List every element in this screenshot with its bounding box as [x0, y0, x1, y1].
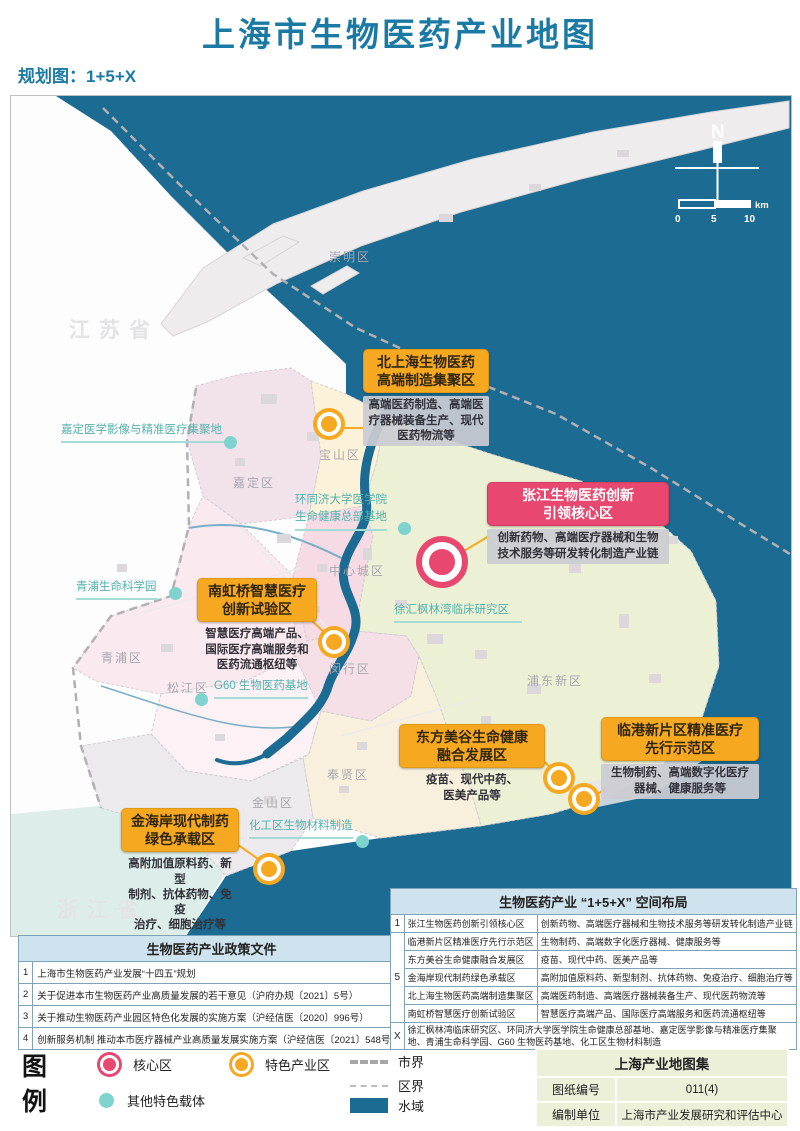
- legend-item-city-boundary: 市界: [350, 1052, 424, 1071]
- district-label-minhang: 闵行区: [329, 660, 371, 677]
- featured-dot-dongfangmeigu: [547, 766, 571, 790]
- table-row: 2关于促进本市生物医药产业高质量发展的若干意见（沪府办规〔2021〕5号）: [19, 984, 405, 1006]
- district-label-baoshan: 宝山区: [319, 446, 361, 463]
- water-area-icon: [350, 1098, 388, 1113]
- site-label-huagong: 化工区生物材料制造: [249, 818, 353, 839]
- scale-bar-right: [715, 200, 751, 208]
- site-label-jiading-imaging: 嘉定医学影像与精准医疗集聚地: [61, 422, 229, 443]
- callout-zhangjiang-title: 张江生物医药创新 引领核心区: [487, 482, 669, 526]
- featured-dot-jinhaian: [257, 857, 281, 881]
- core-dot-zhangjiang: [422, 542, 462, 582]
- legend-district-label: 区界: [398, 1076, 424, 1095]
- featured-dot-nanhongqiao: [322, 630, 346, 654]
- callout-jinhaian-desc: 高附加值原料药、新型 制剂、抗体药物、免疫 治疗、细胞治疗等: [121, 855, 239, 935]
- sheet-number-label: 图纸编号: [536, 1077, 616, 1102]
- table-row: 5 临港新片区精准医疗先行示范区 生物制药、高端数字化医疗器械、健康服务等: [391, 933, 797, 951]
- legend-item-featured: 特色产业区: [228, 1051, 330, 1078]
- core-zone-icon: [100, 1055, 119, 1074]
- legend-water-label: 水域: [398, 1096, 424, 1115]
- callout-jinhaian: 金海岸现代制药 绿色承载区 高附加值原料药、新型 制剂、抗体药物、免疫 治疗、细…: [121, 808, 239, 935]
- district-label-jinshan: 金山区: [252, 794, 294, 811]
- scale-tick-0: 0: [675, 214, 681, 225]
- policy-row-text: 创新服务机制 推动本市医疗器械产业高质量发展实施方案（沪经信医〔2021〕548…: [33, 1028, 405, 1050]
- table-row: 4创新服务机制 推动本市医疗器械产业高质量发展实施方案（沪经信医〔2021〕54…: [19, 1028, 405, 1050]
- province-label-jiangsu: 江苏省: [69, 314, 159, 344]
- table-row: 编制单位 上海市产业发展研究和评估中心: [536, 1102, 788, 1127]
- carrier-dot-qingpu: [169, 587, 182, 600]
- callout-nanhongqiao-desc: 智慧医疗高端产品、 国际医疗高端服务和 医药流通枢纽等: [197, 625, 317, 675]
- map-info-box: 上海产业地图集 图纸编号 011(4) 编制单位 上海市产业发展研究和评估中心: [535, 1048, 789, 1128]
- spatial-layout-table: 生物医药产业 “1+5+X” 空间布局 1 张江生物医药创新引领核心区 创新药物…: [390, 888, 797, 1050]
- district-label-fengxian: 奉贤区: [327, 766, 369, 783]
- legend-item-core: 核心区: [96, 1051, 172, 1078]
- callout-lingang: 临港新片区精准医疗 先行示范区 生物制药、高端数字化医疗 器械、健康服务等: [601, 717, 759, 799]
- table-row: 1 张江生物医药创新引领核心区 创新药物、高端医疗器械和生物技术服务等研发转化制…: [391, 915, 797, 933]
- policy-row-text: 关于推动生物医药产业园区特色化发展的实施方案（沪经信医〔2020〕996号）: [33, 1006, 405, 1028]
- district-label-qingpu: 青浦区: [101, 649, 143, 666]
- policy-table-title: 生物医药产业政策文件: [19, 936, 405, 962]
- table-row: 图纸编号 011(4): [536, 1077, 788, 1102]
- legend-item-carrier: 其他特色载体: [96, 1090, 205, 1111]
- callout-lingang-desc: 生物制药、高端数字化医疗 器械、健康服务等: [601, 764, 759, 798]
- featured-dot-lingang: [572, 787, 596, 811]
- layout-table-title: 生物医药产业 “1+5+X” 空间布局: [391, 889, 797, 915]
- legend-featured-label: 特色产业区: [265, 1055, 330, 1074]
- policy-row-text: 关于促进本市生物医药产业高质量发展的若干意见（沪府办规〔2021〕5号）: [33, 984, 405, 1006]
- callout-zhangjiang-desc: 创新药物、高端医疗器械和生物 技术服务等研发转化制造产业链: [487, 529, 669, 563]
- policy-row-text: 上海市生物医药产业发展“十四五”规划: [33, 962, 405, 984]
- callout-nanhongqiao: 南虹桥智慧医疗 创新试验区 智慧医疗高端产品、 国际医疗高端服务和 医药流通枢纽…: [197, 578, 317, 675]
- callout-dongfangmeigu: 东方美谷生命健康 融合发展区 疫苗、现代中药、 医美产品等: [399, 724, 545, 806]
- carrier-dot-jiading: [224, 436, 237, 449]
- featured-dot-beishanghai: [317, 412, 341, 436]
- callout-zhangjiang: 张江生物医药创新 引领核心区 创新药物、高端医疗器械和生物 技术服务等研发转化制…: [487, 482, 669, 564]
- callout-dongfangmeigu-desc: 疫苗、现代中药、 医美产品等: [399, 771, 545, 805]
- legend-city-label: 市界: [398, 1052, 424, 1071]
- legend-core-label: 核心区: [133, 1055, 172, 1074]
- callout-nanhongqiao-title: 南虹桥智慧医疗 创新试验区: [197, 578, 317, 622]
- map-panel: N 0 5 10 km 江苏省 浙江省 崇明区 嘉定区 宝山区 中心城区 青浦区…: [10, 95, 792, 937]
- callout-jinhaian-title: 金海岸现代制药 绿色承载区: [121, 808, 239, 852]
- carrier-dot-tongji: [398, 522, 411, 535]
- north-icon: N: [711, 122, 725, 143]
- table-row: 北上海生物医药高端制造集聚区 高端医药制造、高端医疗器械装备生产、现代医药物流等: [391, 987, 797, 1005]
- callout-beishanghai-desc: 高端医药制造、高端医 疗器械装备生产、现代 医药物流等: [363, 396, 489, 446]
- carrier-dot-g60: [195, 693, 208, 706]
- table-row: 东方美谷生命健康融合发展区 疫苗、现代中药、医美产品等: [391, 951, 797, 969]
- callout-beishanghai-title: 北上海生物医药 高端制造集聚区: [363, 349, 489, 393]
- scale-unit: km: [755, 200, 769, 211]
- district-label-jiading: 嘉定区: [233, 474, 275, 491]
- legend-item-water: 水域: [350, 1096, 424, 1115]
- sheet-number-value: 011(4): [616, 1077, 788, 1102]
- district-label-pudong: 浦东新区: [527, 672, 583, 689]
- district-label-central: 中心城区: [329, 562, 385, 579]
- table-row: 金海岸现代制药绿色承载区 高附加值原料药、新型制剂、抗体药物、免疫治疗、细胞治疗…: [391, 969, 797, 987]
- site-label-tongji: 环同济大学医学院 生命健康总部基地: [295, 492, 387, 531]
- callout-beishanghai: 北上海生物医药 高端制造集聚区 高端医药制造、高端医 疗器械装备生产、现代 医药…: [363, 349, 489, 446]
- page-canvas: 上海市生物医药产业地图 规划图：1+5+X: [0, 0, 800, 1131]
- district-boundary-icon: [350, 1085, 388, 1087]
- page-subtitle: 规划图：1+5+X: [18, 62, 136, 87]
- policy-table: 生物医药产业政策文件 1上海市生物医药产业发展“十四五”规划 2关于促进本市生物…: [18, 935, 405, 1050]
- table-row: X 徐汇枫林湾临床研究区、环同济大学医学院生命健康总部基地、嘉定医学影像与精准医…: [391, 1023, 797, 1050]
- callout-dongfangmeigu-title: 东方美谷生命健康 融合发展区: [399, 724, 545, 768]
- legend-title: 图例: [22, 1050, 52, 1120]
- site-label-qingpu-life: 青浦生命科学园: [76, 579, 157, 600]
- site-label-xuhui: 徐汇枫林湾临床研究区: [394, 602, 522, 623]
- legend-item-district-boundary: 区界: [350, 1076, 424, 1095]
- issuer-value: 上海市产业发展研究和评估中心: [616, 1102, 788, 1127]
- legend-carrier-label: 其他特色载体: [127, 1091, 205, 1110]
- atlas-title: 上海产业地图集: [536, 1049, 788, 1077]
- issuer-label: 编制单位: [536, 1102, 616, 1127]
- callout-lingang-title: 临港新片区精准医疗 先行示范区: [601, 717, 759, 761]
- city-boundary-icon: [350, 1060, 388, 1064]
- featured-zone-icon: [232, 1055, 251, 1074]
- carrier-zone-icon: [99, 1093, 114, 1108]
- district-label-chongming: 崇明区: [329, 248, 371, 265]
- carrier-dot-huagong: [356, 835, 369, 848]
- scale-tick-10: 10: [744, 214, 756, 225]
- table-row: 1上海市生物医药产业发展“十四五”规划: [19, 962, 405, 984]
- scale-tick-5: 5: [711, 214, 717, 225]
- site-label-g60: G60 生物医药基地: [214, 678, 308, 699]
- table-row: 南虹桥智慧医疗创新试验区 智慧医疗高端产品、国际医疗高端服务和医药流通枢纽等: [391, 1005, 797, 1023]
- page-title: 上海市生物医药产业地图: [0, 8, 800, 56]
- table-row: 3关于推动生物医药产业园区特色化发展的实施方案（沪经信医〔2020〕996号）: [19, 1006, 405, 1028]
